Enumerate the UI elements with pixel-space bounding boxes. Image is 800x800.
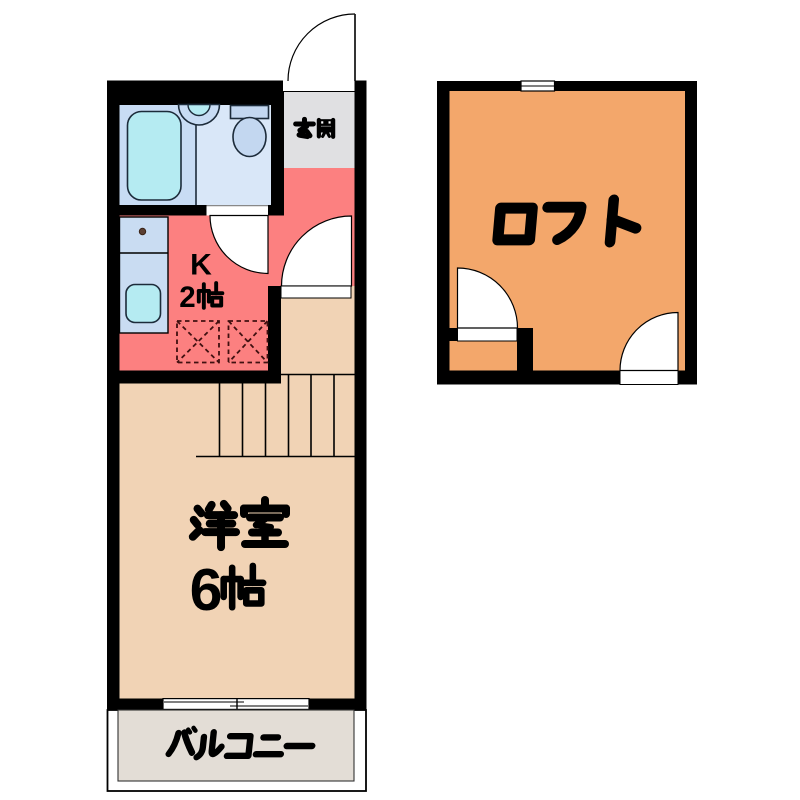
svg-text:2: 2 xyxy=(179,281,195,314)
svg-text:6: 6 xyxy=(190,557,223,623)
svg-text:K: K xyxy=(190,249,212,282)
